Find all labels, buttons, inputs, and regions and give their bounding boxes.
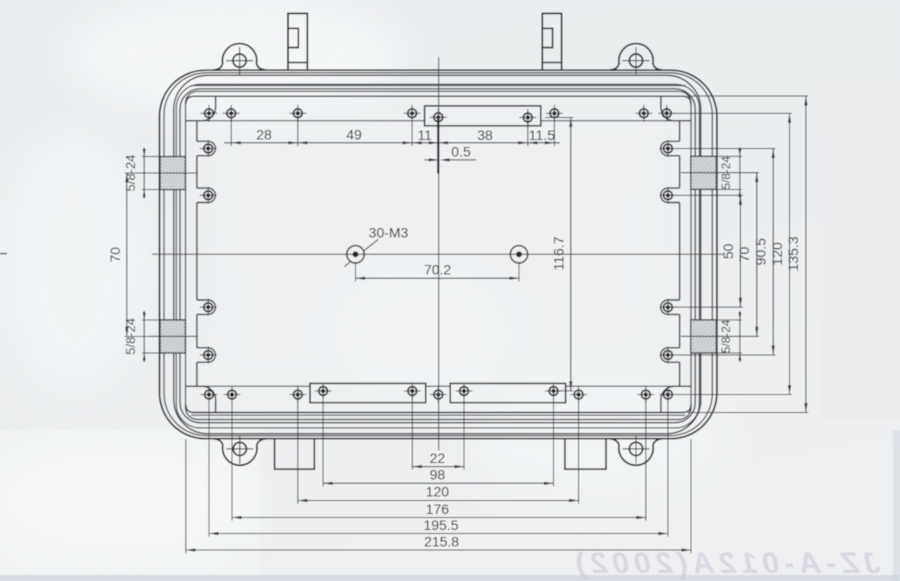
svg-text:22: 22 xyxy=(430,450,446,466)
svg-text:70.2: 70.2 xyxy=(424,261,451,277)
svg-text:11: 11 xyxy=(418,127,433,143)
svg-text:176: 176 xyxy=(426,501,450,517)
svg-text:116.7: 116.7 xyxy=(551,236,567,270)
svg-text:120: 120 xyxy=(426,484,450,500)
svg-text:11.5: 11.5 xyxy=(529,127,555,143)
svg-text:5/8-24: 5/8-24 xyxy=(719,156,733,190)
svg-text:215.8: 215.8 xyxy=(424,533,459,549)
svg-text:50: 50 xyxy=(720,243,736,259)
svg-text:28: 28 xyxy=(256,127,272,143)
svg-text:0.5: 0.5 xyxy=(451,143,471,159)
svg-text:70: 70 xyxy=(736,247,752,263)
svg-text:49: 49 xyxy=(346,127,362,143)
svg-text:120: 120 xyxy=(769,242,785,266)
svg-text:98: 98 xyxy=(430,467,446,483)
svg-text:30-M3: 30-M3 xyxy=(369,225,409,241)
svg-text:5/8-24: 5/8-24 xyxy=(719,319,733,353)
svg-text:135.3: 135.3 xyxy=(785,236,801,271)
svg-text:70: 70 xyxy=(107,247,123,263)
svg-text:90.5: 90.5 xyxy=(752,238,768,265)
svg-text:195.5: 195.5 xyxy=(423,517,458,533)
svg-text:38: 38 xyxy=(477,127,493,143)
